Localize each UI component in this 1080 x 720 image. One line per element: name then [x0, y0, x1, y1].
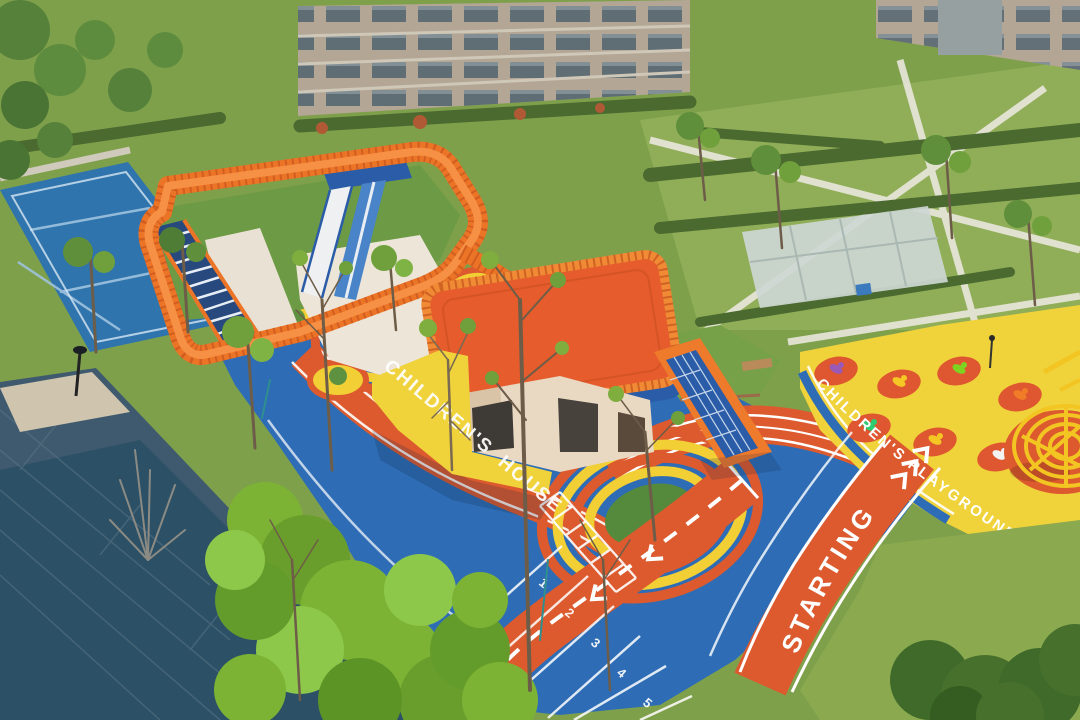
pavilion-door: [618, 412, 645, 452]
aerial-playground-photo: 1 2 3 4 5 6 STARTING CHILDREN: [0, 0, 1080, 720]
pavilion-window: [558, 398, 598, 452]
scene-svg: 1 2 3 4 5 6 STARTING CHILDREN: [0, 0, 1080, 720]
